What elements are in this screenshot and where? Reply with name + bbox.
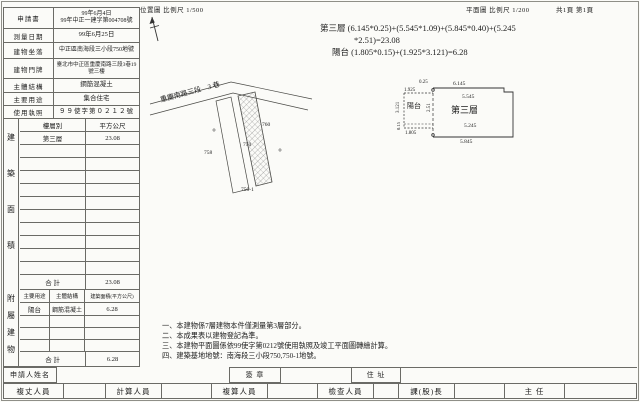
- address-label: 住 址: [351, 367, 401, 383]
- structure-label: 主體結構: [4, 79, 54, 92]
- note-line: 四、建築基地地號：南海段三小段750,750-1地號。: [162, 351, 392, 361]
- formula-line: *2.51)=23.08: [320, 34, 570, 46]
- survey-date-value: 99年6月25日: [54, 29, 139, 42]
- annex-row: 陽台 鋼筋混凝土 6.28: [20, 303, 139, 316]
- official-label: 課(股)長: [399, 384, 455, 398]
- annex-area: 6.28: [85, 303, 139, 315]
- empty-row: [20, 210, 139, 223]
- annex-total-value: 6.28: [86, 352, 139, 366]
- address-value: 臺北市中正區重慶南路三段3巷19號三樓: [54, 59, 139, 78]
- signature-field: [281, 367, 351, 383]
- formula-line: 第三層 (6.145*0.25)+(5.545*1.09)+(5.845*0.4…: [320, 22, 570, 34]
- annex-structure: 鋼筋混凝土: [50, 303, 85, 315]
- annex-total-label: 合 計: [20, 352, 86, 366]
- official-label: 計算人員: [106, 384, 162, 398]
- page-count: 共1頁 第1頁: [556, 4, 594, 14]
- dim-inner-upper: 5.545: [462, 94, 475, 100]
- empty-row: [20, 223, 139, 236]
- annex-side-strip: 附屬建物: [4, 290, 19, 366]
- empty-row: [20, 184, 139, 197]
- address-field: [401, 367, 637, 383]
- floor-name: 第三層: [20, 132, 86, 144]
- floor-table-header: 樓層別 平方公尺: [20, 119, 139, 132]
- empty-row: [20, 171, 139, 184]
- table-row: 主體結構 鋼筋混凝土: [4, 79, 139, 93]
- empty-row: [20, 197, 139, 210]
- col-area-header: 平方公尺: [86, 119, 139, 131]
- floor-area-value: 23.08: [86, 132, 139, 144]
- signature-label: 簽 章: [229, 367, 281, 383]
- empty-row: [20, 145, 139, 158]
- table-row: 使用執照 ９９使字第０２１２號: [4, 106, 139, 119]
- annex-use: 陽台: [20, 303, 50, 315]
- note-line: 二、本成果表以建物登記為準。: [162, 331, 392, 341]
- parcel-number: 750: [243, 142, 252, 148]
- table-row: 測量日期 99年6月25日: [4, 29, 139, 43]
- formula-line: 陽台 (1.805*0.15)+(1.925*3.121)=6.28: [320, 46, 570, 58]
- applicant-name-field: [57, 367, 229, 383]
- applicant-row: 申請人姓名 簽 章 住 址: [3, 367, 637, 383]
- north-arrow-icon: [146, 13, 164, 43]
- official-label: 複丈人員: [4, 384, 64, 398]
- official-signature-cell: [64, 384, 106, 398]
- dim-inner-lower: 5.245: [464, 123, 477, 129]
- official-signature-cell: [455, 384, 505, 398]
- official-signature-cell: [162, 384, 212, 398]
- application-label: 申請書: [4, 8, 54, 28]
- site-label: 建物坐落: [4, 43, 54, 58]
- floor-area-side-label: 建築面積: [6, 133, 17, 277]
- empty-row: [20, 262, 139, 275]
- area-calculation-formulas: 第三層 (6.145*0.25)+(5.545*1.09)+(5.845*0.4…: [320, 22, 570, 58]
- dim-top-strip: 0.25: [419, 80, 428, 85]
- subject-parcel-hatch-overlay: [238, 92, 272, 186]
- annex-header: 主要用途 主體結構 建築面積(平方公尺): [20, 290, 139, 303]
- dim-top: 6.145: [453, 81, 466, 87]
- dim-balcony-left: 3.121: [396, 101, 401, 113]
- col-floor-header: 樓層別: [20, 119, 86, 131]
- survey-form-sheet: 位置圖 比例尺 1/500 平面圖 比例尺 1/200 共1頁 第1頁 申請書 …: [0, 0, 640, 402]
- dim-balcony-top: 1.925: [404, 88, 416, 93]
- floor-total-row: 合 計 23.08: [20, 275, 139, 290]
- empty-row: [20, 236, 139, 249]
- annex-section: 附屬建物 主要用途 主體結構 建築面積(平方公尺) 陽台 鋼筋混凝土 6.28 …: [4, 290, 139, 366]
- floor-total-value: 23.08: [86, 275, 139, 289]
- license-label: 使用執照: [4, 106, 54, 118]
- note-line: 一、本建物係7層建物本件僅測量第3層部分。: [162, 321, 392, 331]
- official-signature-cell: [565, 384, 636, 398]
- road-name-label: 重慶南路三段 3 巷: [159, 79, 220, 104]
- dim-strip-height: 0.15: [396, 121, 401, 130]
- empty-row: [20, 328, 139, 340]
- parcel-number: 758: [204, 150, 213, 156]
- floor-row: 第三層 23.08: [20, 132, 139, 145]
- structure-value: 鋼筋混凝土: [54, 79, 139, 92]
- applicant-name-label: 申請人姓名: [3, 367, 57, 383]
- plan-scale: 平面圖 比例尺 1/200: [466, 4, 530, 14]
- floor-area-section: 建築面積 樓層別 平方公尺 第三層 23.08 合 計 23.08: [4, 119, 139, 290]
- note-line: 三、本建物平面圖係依99使字第0212號使用執照及竣工平面圖轉繪計算。: [162, 341, 392, 351]
- annex-col-area: 建築面積(平方公尺): [85, 290, 139, 302]
- use-label: 主要用途: [4, 93, 54, 105]
- annex-side-label: 附屬建物: [6, 294, 17, 362]
- official-signature-cell: [268, 384, 318, 398]
- table-row: 建物門牌 臺北市中正區重慶南路三段3巷19號三樓: [4, 59, 139, 79]
- floor-plan: 0.25 6.145 1.925 5.545 3.121 2.51 陽台 第三層…: [388, 70, 528, 150]
- annex-col-structure: 主體結構: [50, 290, 85, 302]
- empty-row: [20, 158, 139, 171]
- empty-row: [20, 249, 139, 262]
- building-info-table: 申請書 99年6月4日 99年中正一建字第004708號 測量日期 99年6月2…: [3, 7, 140, 367]
- room-label: 第三層: [451, 104, 478, 115]
- empty-row: [20, 340, 139, 352]
- dim-mid-height: 2.51: [427, 103, 432, 112]
- balcony-label: 陽台: [407, 101, 421, 110]
- parcel-number: 760: [262, 122, 271, 128]
- application-value: 99年6月4日 99年中正一建字第004708號: [54, 8, 139, 28]
- official-label: 主 任: [505, 384, 565, 398]
- annex-col-use: 主要用途: [20, 290, 50, 302]
- official-label: 檢查人員: [318, 384, 374, 398]
- officials-signature-row: 複丈人員 計算人員 複算人員 檢查人員 課(股)長 主 任: [3, 383, 637, 399]
- table-row: 主要用途 集合住宅: [4, 93, 139, 106]
- table-row: 建物坐落 中正區南海段三小段750地號: [4, 43, 139, 59]
- location-map: 重慶南路三段 3 巷 758 750 760 750-1: [140, 55, 330, 205]
- floor-total-label: 合 計: [20, 275, 86, 289]
- parcel-number: 750-1: [241, 187, 254, 193]
- dim-balcony-bottom: 1.805: [405, 131, 417, 136]
- dim-bottom: 5.845: [460, 139, 473, 145]
- use-value: 集合住宅: [54, 93, 139, 105]
- site-value: 中正區南海段三小段750地號: [54, 43, 139, 58]
- survey-date-label: 測量日期: [4, 29, 54, 42]
- notes-block: 一、本建物係7層建物本件僅測量第3層部分。 二、本成果表以建物登記為準。 三、本…: [162, 321, 392, 361]
- license-value: ９９使字第０２１２號: [54, 106, 139, 118]
- official-signature-cell: [374, 384, 399, 398]
- table-row: 申請書 99年6月4日 99年中正一建字第004708號: [4, 8, 139, 29]
- floor-area-side-strip: 建築面積: [4, 119, 19, 290]
- annex-total-row: 合 計 6.28: [20, 352, 139, 366]
- address-label: 建物門牌: [4, 59, 54, 78]
- official-label: 複算人員: [212, 384, 268, 398]
- empty-row: [20, 316, 139, 328]
